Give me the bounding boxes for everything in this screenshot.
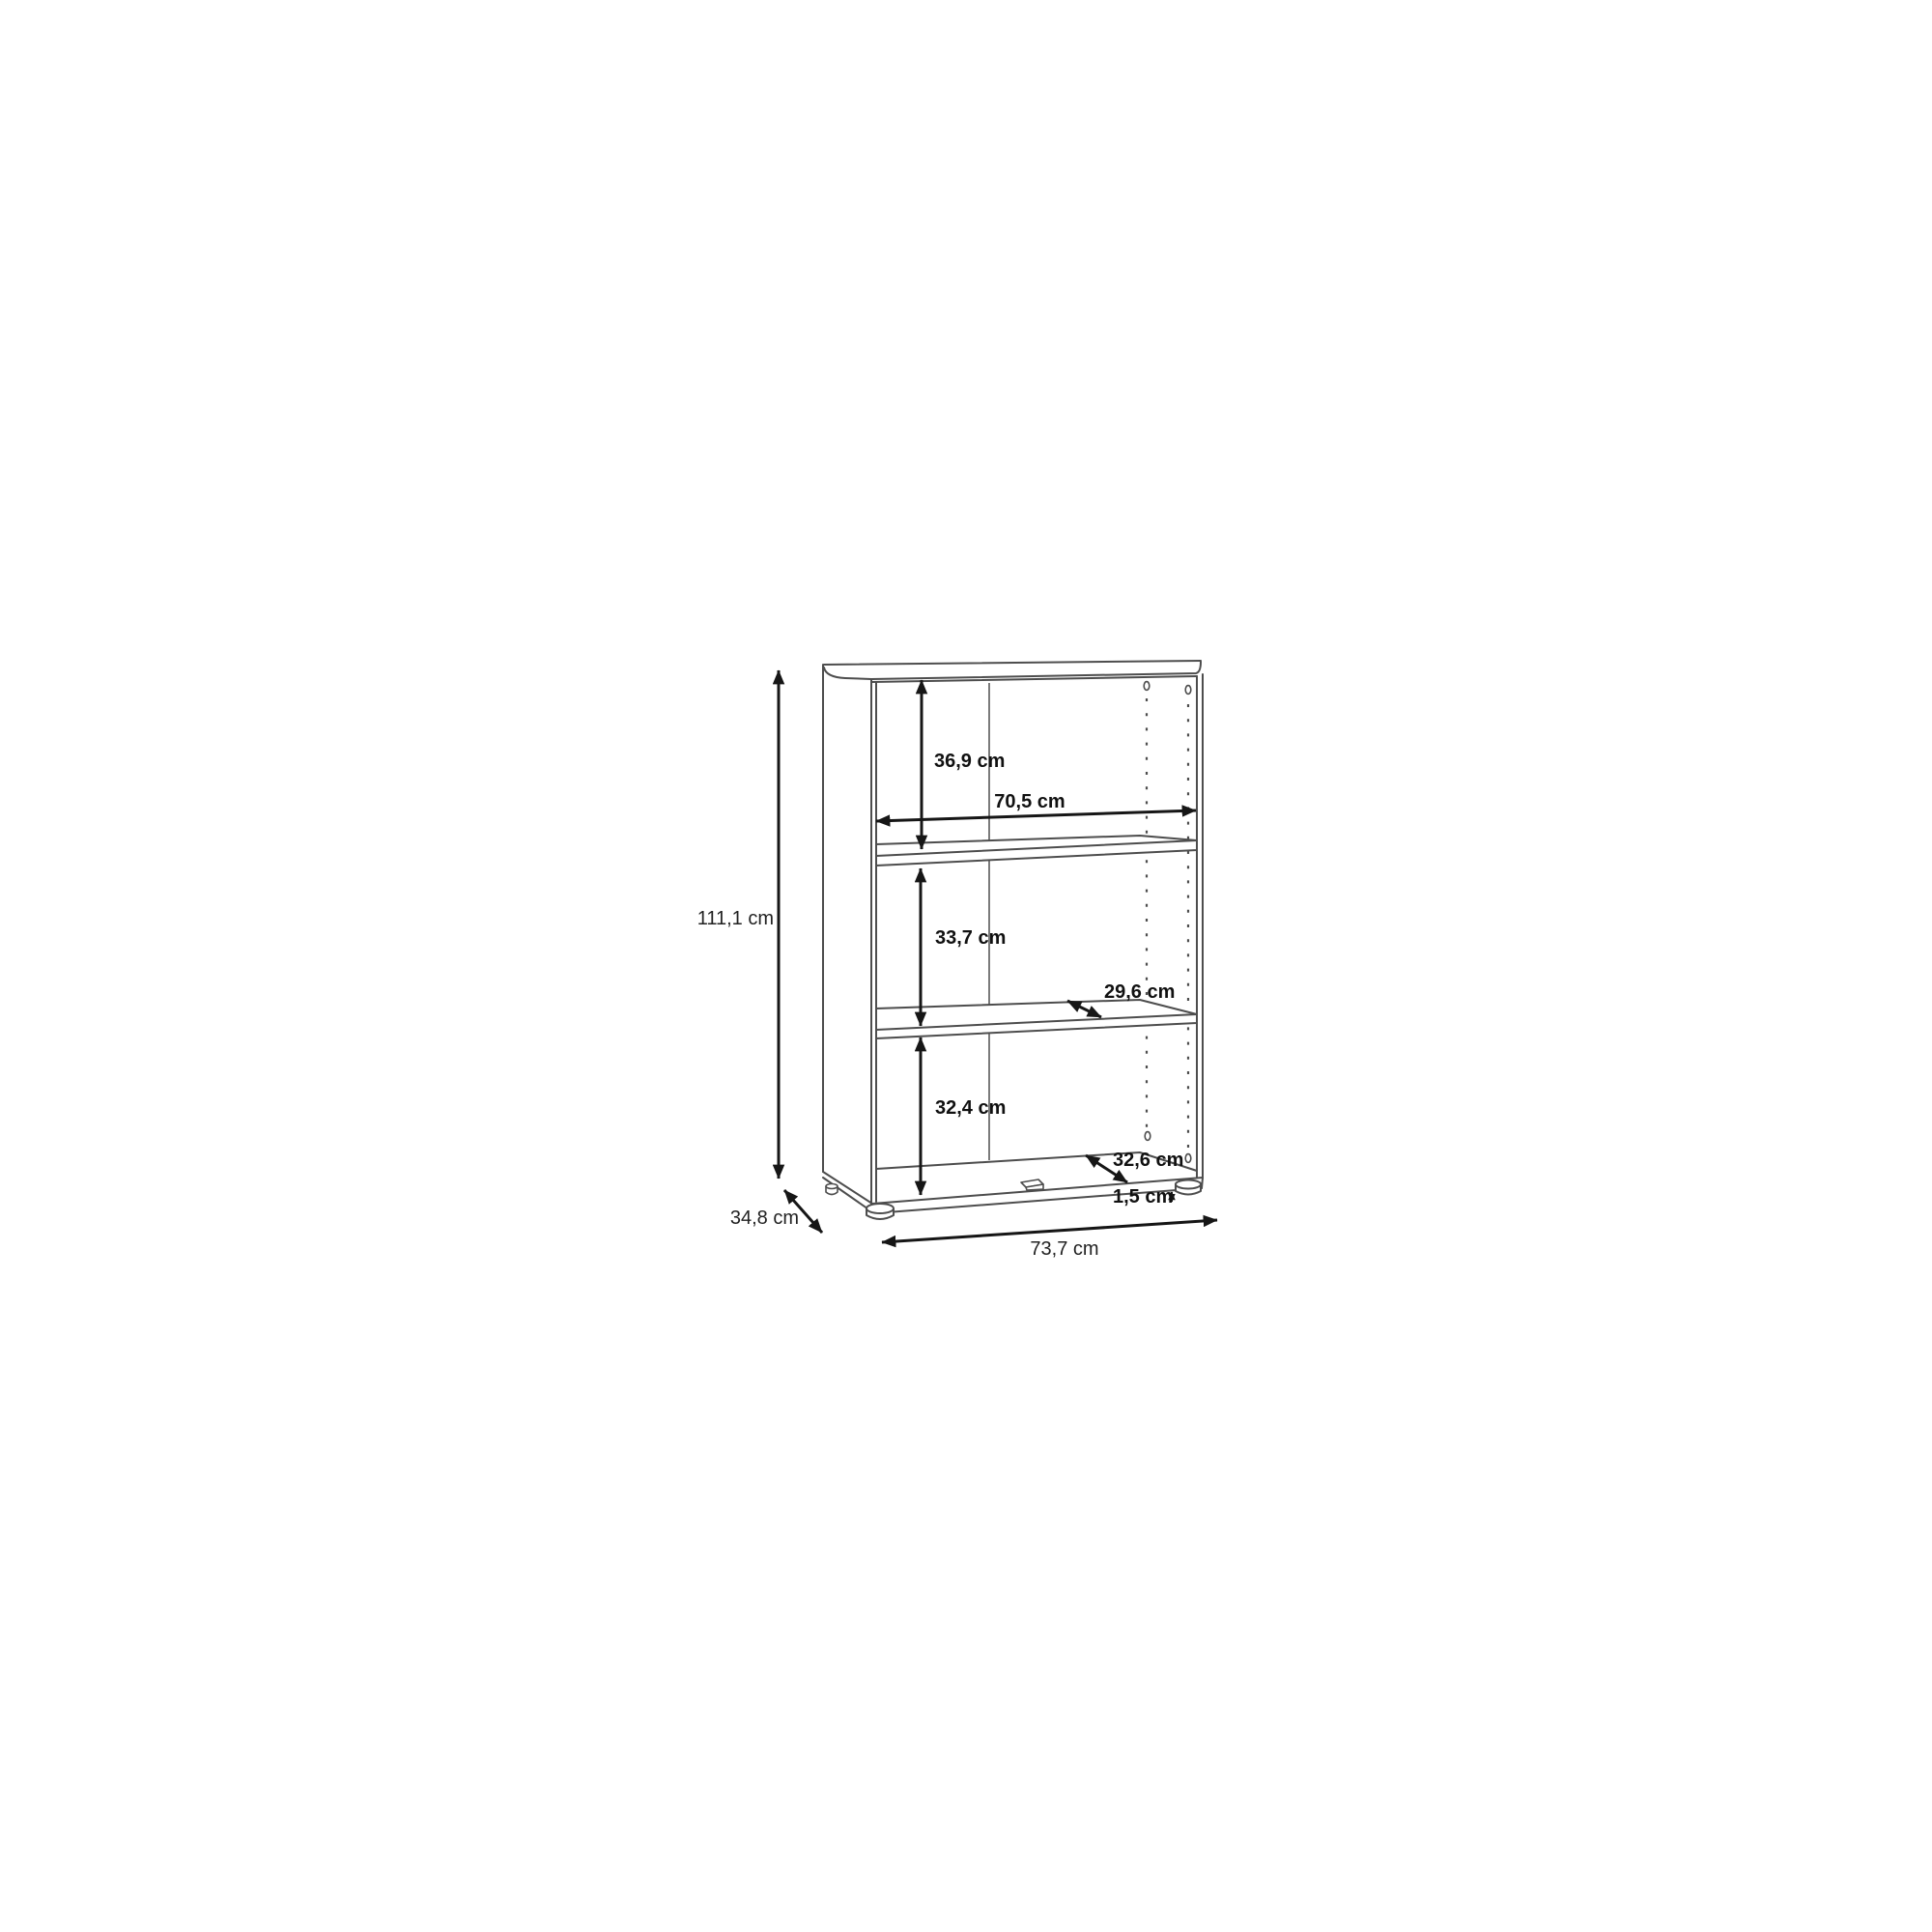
dim-top-compartment: 36,9 cm bbox=[922, 680, 1005, 849]
dim-overall-depth: 34,8 cm bbox=[730, 1190, 822, 1233]
pin-slot-icon bbox=[1185, 686, 1191, 695]
pin-slot-icon bbox=[1144, 682, 1150, 691]
dim-overall-height: 111,1 cm bbox=[697, 670, 779, 1179]
dim-overall-width: 73,7 cm bbox=[882, 1220, 1217, 1260]
dim-middle-compartment: 33,7 cm bbox=[921, 868, 1006, 1026]
foot-back-left bbox=[826, 1184, 838, 1195]
bookcase-dimension-diagram: 111,1 cm 34,8 cm 73,7 cm 36,9 cm 70,5 cm… bbox=[0, 0, 1932, 1932]
plinth-right-cap bbox=[1202, 1178, 1203, 1188]
top-panel bbox=[824, 661, 1201, 682]
dimension-drawing-page: 111,1 cm 34,8 cm 73,7 cm 36,9 cm 70,5 cm… bbox=[0, 0, 1932, 1932]
dim-internal-depth-label: 32,6 cm bbox=[1113, 1150, 1183, 1171]
pin-slot-icon bbox=[1185, 1154, 1191, 1163]
dim-overall-depth-label: 34,8 cm bbox=[730, 1207, 799, 1229]
pin-slot-icon bbox=[1145, 1132, 1151, 1141]
dim-internal-width: 70,5 cm bbox=[876, 791, 1196, 821]
dim-bottom-compartment-label: 32,4 cm bbox=[935, 1097, 1006, 1119]
dim-middle-compartment-label: 33,7 cm bbox=[935, 927, 1006, 949]
shelf-1-board bbox=[876, 836, 1197, 866]
dim-overall-height-label: 111,1 cm bbox=[697, 908, 774, 929]
shelf-2 bbox=[876, 1000, 1197, 1038]
dim-overall-width-label: 73,7 cm bbox=[1030, 1238, 1098, 1260]
cabinet-outline bbox=[823, 661, 1203, 1219]
dim-foot-height-label: 1,5 cm bbox=[1113, 1186, 1173, 1207]
dim-shelf-depth-label: 29,6 cm bbox=[1104, 981, 1175, 1003]
top-panel-back-edge bbox=[824, 661, 1201, 665]
foot-front-right bbox=[1176, 1180, 1201, 1195]
dim-foot-height: 1,5 cm bbox=[1113, 1186, 1173, 1207]
foot-front-left bbox=[867, 1204, 894, 1219]
dim-internal-width-label: 70,5 cm bbox=[994, 791, 1065, 812]
dim-bottom-compartment: 32,4 cm bbox=[921, 1037, 1006, 1195]
shelf-1 bbox=[876, 836, 1197, 866]
shelf-pin-holes bbox=[1144, 682, 1191, 1163]
shelf-2-board bbox=[876, 1000, 1197, 1038]
dim-top-compartment-label: 36,9 cm bbox=[934, 751, 1005, 772]
cable-slot bbox=[1021, 1179, 1043, 1190]
